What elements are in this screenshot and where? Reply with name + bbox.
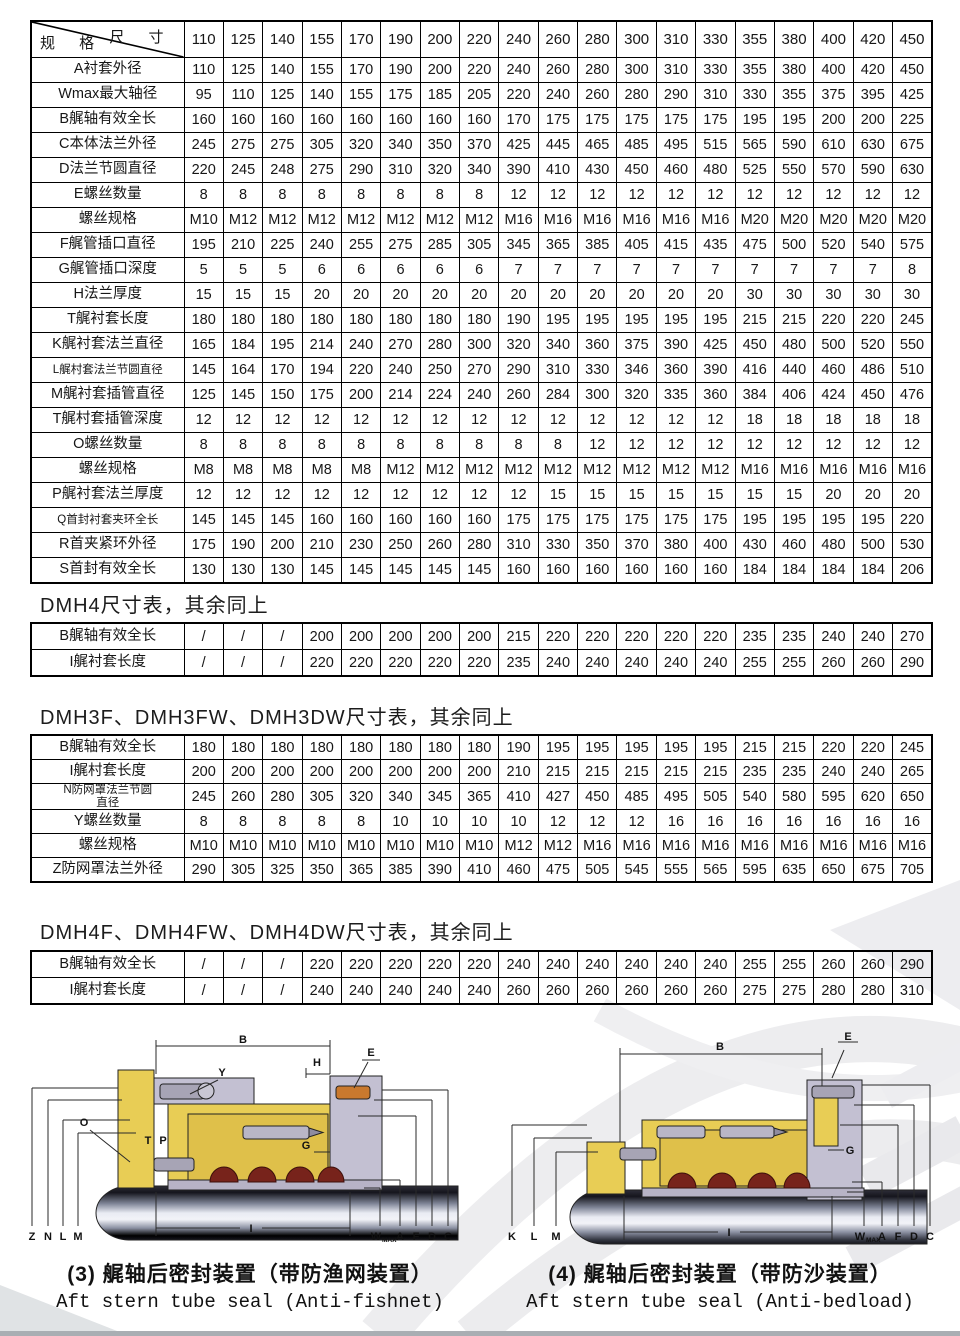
dim-value-cell: 15 <box>538 483 577 508</box>
dim-value-cell: 270 <box>381 333 420 358</box>
dim-value-cell: 450 <box>617 158 656 183</box>
dim-value-cell: 12 <box>774 183 813 208</box>
dim-label-G: G <box>302 1140 311 1152</box>
dim-value-cell: 220 <box>696 623 735 650</box>
dimension-table-dmh3f: B艉轴有效全长180180180180180180180180190195195… <box>30 734 933 883</box>
dimension-table-dmh4f: B艉轴有效全长///220220220220220240240240240240… <box>30 950 933 1005</box>
dim-value-cell: 390 <box>656 333 695 358</box>
dim-value-cell: 12 <box>578 408 617 433</box>
dim-value-cell: 160 <box>617 558 656 584</box>
dim-value-cell: M10 <box>184 208 223 233</box>
dim-label-F: F <box>413 1231 420 1243</box>
dim-value-cell: 290 <box>892 951 932 978</box>
dim-value-cell: 310 <box>892 978 932 1005</box>
dim-value-cell: 240 <box>696 650 735 677</box>
dim-value-cell: 200 <box>302 623 341 650</box>
dim-value-cell: 385 <box>381 858 420 883</box>
dim-value-cell: 200 <box>420 760 459 784</box>
dim-value-cell: M12 <box>223 208 262 233</box>
dim-value-cell: 240 <box>656 650 695 677</box>
dim-value-cell: 180 <box>263 735 302 760</box>
dim-value-cell: 12 <box>538 408 577 433</box>
dim-value-cell: 12 <box>617 183 656 208</box>
dim-value-cell: 390 <box>420 858 459 883</box>
dim-value-cell: 220 <box>656 623 695 650</box>
dim-value-cell: 475 <box>735 233 774 258</box>
dim-value-cell: 500 <box>814 333 853 358</box>
dim-value-cell: / <box>184 623 223 650</box>
dim-value-cell: / <box>263 978 302 1005</box>
dim-value-cell: 18 <box>735 408 774 433</box>
dim-value-cell: 500 <box>774 233 813 258</box>
dim-value-cell: M16 <box>735 458 774 483</box>
table-row: T艉村套插管深度12121212121212121212121212121818… <box>31 408 932 433</box>
dim-value-cell: 220 <box>814 735 853 760</box>
section-heading-dmh4: DMH4尺寸表，其余同上 <box>40 589 269 618</box>
table-row: S首封有效全长130130130145145145145145160160160… <box>31 558 932 584</box>
table-row: N防网罩法兰节圆 直径24526028030532034034536541042… <box>31 784 932 810</box>
dim-value-cell: 160 <box>381 108 420 133</box>
dim-value-cell: 16 <box>735 810 774 834</box>
dim-value-cell: 415 <box>656 233 695 258</box>
dim-value-cell: 195 <box>184 233 223 258</box>
dim-value-cell: 465 <box>578 133 617 158</box>
row-label: D法兰节圆直径 <box>31 158 184 183</box>
dim-value-cell: 16 <box>774 810 813 834</box>
dim-value-cell: 12 <box>617 810 656 834</box>
dim-value-cell: 160 <box>499 558 538 584</box>
table-row: H法兰厚度15151520202020202020202020203030303… <box>31 283 932 308</box>
dim-value-cell: 184 <box>223 333 262 358</box>
dim-value-cell: 340 <box>381 133 420 158</box>
dim-value-cell: 475 <box>538 858 577 883</box>
dim-value-cell: 195 <box>656 308 695 333</box>
dim-value-cell: 245 <box>184 784 223 810</box>
dim-value-cell: 200 <box>420 58 459 83</box>
dim-value-cell: 20 <box>420 283 459 308</box>
dim-value-cell: 30 <box>735 283 774 308</box>
size-column-header: 125 <box>223 21 262 58</box>
dim-value-cell: 8 <box>892 258 932 283</box>
dim-value-cell: 175 <box>499 508 538 533</box>
dim-value-cell: 180 <box>184 735 223 760</box>
row-label: Z防网罩法兰外径 <box>31 858 184 883</box>
dim-value-cell: 12 <box>341 408 380 433</box>
dim-value-cell: 275 <box>381 233 420 258</box>
row-label: R首夹紧环外径 <box>31 533 184 558</box>
dim-label-Y: Y <box>218 1067 226 1079</box>
corner-label-size: 尺 寸 <box>109 26 173 47</box>
dim-value-cell: M10 <box>341 834 380 858</box>
dim-value-cell: 8 <box>223 433 262 458</box>
dim-value-cell: 206 <box>892 558 932 584</box>
dim-value-cell: 240 <box>538 650 577 677</box>
dim-value-cell: 550 <box>892 333 932 358</box>
dim-value-cell: 240 <box>696 951 735 978</box>
dim-value-cell: 16 <box>656 810 695 834</box>
dim-value-cell: 7 <box>538 258 577 283</box>
dim-value-cell: 12 <box>774 433 813 458</box>
dim-value-cell: 200 <box>341 760 380 784</box>
dim-value-cell: 305 <box>460 233 499 258</box>
dim-value-cell: 220 <box>892 508 932 533</box>
dim-value-cell: 12 <box>420 483 459 508</box>
dim-value-cell: 416 <box>735 358 774 383</box>
dim-value-cell: 175 <box>578 108 617 133</box>
dim-value-cell: M12 <box>263 208 302 233</box>
dim-value-cell: 215 <box>735 735 774 760</box>
dim-value-cell: 480 <box>814 533 853 558</box>
dim-value-cell: 175 <box>617 108 656 133</box>
dim-value-cell: 240 <box>617 951 656 978</box>
table-row: I艉村套长度2002002002002002002002002102152152… <box>31 760 932 784</box>
dim-value-cell: 530 <box>892 533 932 558</box>
dim-value-cell: M16 <box>814 458 853 483</box>
dim-value-cell: 260 <box>814 650 853 677</box>
size-column-header: 220 <box>460 21 499 58</box>
dim-value-cell: 424 <box>814 383 853 408</box>
table-row: D法兰节圆直径220245248275290310320340390410430… <box>31 158 932 183</box>
dim-value-cell: 12 <box>499 483 538 508</box>
dim-value-cell: 140 <box>302 83 341 108</box>
dim-value-cell: 260 <box>853 951 892 978</box>
dim-value-cell: M10 <box>460 834 499 858</box>
dim-value-cell: M10 <box>420 834 459 858</box>
dim-value-cell: 200 <box>341 623 380 650</box>
dim-value-cell: 385 <box>578 233 617 258</box>
dim-label-O: O <box>80 1117 89 1129</box>
top-bolt <box>160 1084 204 1099</box>
dim-value-cell: 485 <box>617 784 656 810</box>
row-label: M艉衬套插管直径 <box>31 383 184 408</box>
dim-value-cell: / <box>223 978 262 1005</box>
dim-value-cell: 12 <box>892 183 932 208</box>
dim-value-cell: 5 <box>223 258 262 283</box>
dim-value-cell: 185 <box>420 83 459 108</box>
dim-value-cell: 12 <box>696 183 735 208</box>
dim-value-cell: 20 <box>617 283 656 308</box>
dim-value-cell: 240 <box>578 951 617 978</box>
dim-value-cell: 240 <box>538 83 577 108</box>
dim-value-cell: 310 <box>656 58 695 83</box>
dim-value-cell: 330 <box>696 58 735 83</box>
dim-value-cell: 195 <box>735 108 774 133</box>
dim-value-cell: 260 <box>617 978 656 1005</box>
dim-value-cell: 200 <box>460 760 499 784</box>
dim-value-cell: 290 <box>184 858 223 883</box>
dim-value-cell: 440 <box>774 358 813 383</box>
dim-value-cell: 220 <box>381 951 420 978</box>
dim-label-B: B <box>716 1041 724 1053</box>
dim-value-cell: 275 <box>223 133 262 158</box>
dim-value-cell: 235 <box>735 623 774 650</box>
dim-value-cell: 110 <box>184 58 223 83</box>
dim-value-cell: 365 <box>538 233 577 258</box>
dim-value-cell: M16 <box>696 834 735 858</box>
dim-value-cell: 635 <box>774 858 813 883</box>
dim-value-cell: 12 <box>223 483 262 508</box>
size-column-header: 260 <box>538 21 577 58</box>
dim-value-cell: 245 <box>892 735 932 760</box>
dim-value-cell: 330 <box>735 83 774 108</box>
dim-label-C: C <box>444 1231 452 1243</box>
dim-value-cell: 220 <box>420 650 459 677</box>
dim-value-cell: 425 <box>696 333 735 358</box>
dim-value-cell: 30 <box>814 283 853 308</box>
page-bottom-band <box>0 1331 960 1336</box>
dim-value-cell: 130 <box>223 558 262 584</box>
dim-value-cell: 180 <box>302 308 341 333</box>
dim-value-cell: 400 <box>814 58 853 83</box>
dim-value-cell: 195 <box>578 735 617 760</box>
dim-value-cell: 565 <box>696 858 735 883</box>
dim-value-cell: 180 <box>223 308 262 333</box>
table-row: A衬套外径11012514015517019020022024026028030… <box>31 58 932 83</box>
dim-value-cell: 200 <box>341 383 380 408</box>
dim-value-cell: 12 <box>263 408 302 433</box>
dim-value-cell: 300 <box>617 58 656 83</box>
dim-value-cell: M8 <box>263 458 302 483</box>
dim-value-cell: 160 <box>696 558 735 584</box>
dim-value-cell: 260 <box>578 83 617 108</box>
size-column-header: 110 <box>184 21 223 58</box>
dim-value-cell: M12 <box>499 458 538 483</box>
dim-value-cell: 450 <box>735 333 774 358</box>
dim-label-E: E <box>367 1047 374 1059</box>
dim-value-cell: 520 <box>853 333 892 358</box>
dim-value-cell: 12 <box>538 183 577 208</box>
dim-value-cell: M16 <box>774 458 813 483</box>
dim-label-N: N <box>44 1231 52 1243</box>
dim-value-cell: 130 <box>184 558 223 584</box>
caption-right-en: Aft stern tube seal (Anti-bedload) <box>495 1291 945 1313</box>
dim-value-cell: 12 <box>420 408 459 433</box>
table-row: G艉管插口深度5556666677777777778 <box>31 258 932 283</box>
dim-value-cell: 180 <box>341 735 380 760</box>
dim-value-cell: 195 <box>696 308 735 333</box>
dim-value-cell: 275 <box>735 978 774 1005</box>
dim-label-Wmax: W <box>371 1231 382 1243</box>
dim-value-cell: 240 <box>460 978 499 1005</box>
row-label: B艉轴有效全长 <box>31 951 184 978</box>
dim-value-cell: 240 <box>460 383 499 408</box>
dim-value-cell: 195 <box>656 735 695 760</box>
dim-value-cell: 260 <box>853 650 892 677</box>
dim-value-cell: 145 <box>184 358 223 383</box>
dim-value-cell: 280 <box>263 784 302 810</box>
dim-value-cell: 200 <box>853 108 892 133</box>
dim-value-cell: 15 <box>696 483 735 508</box>
table-row: 螺丝规格M10M10M10M10M10M10M10M10M12M12M16M16… <box>31 834 932 858</box>
dim-value-cell: / <box>263 951 302 978</box>
dim-value-cell: 310 <box>696 83 735 108</box>
dim-value-cell: 260 <box>538 58 577 83</box>
top-bolt-2 <box>720 1126 774 1138</box>
dim-value-cell: 160 <box>656 558 695 584</box>
caption-left: (3) 艉轴后密封装置（带防渔网装置） Aft stern tube seal … <box>30 1258 470 1313</box>
dim-value-cell: / <box>184 650 223 677</box>
dim-value-cell: 18 <box>774 408 813 433</box>
dim-value-cell: 200 <box>420 623 459 650</box>
dim-value-cell: 15 <box>656 483 695 508</box>
dim-value-cell: 125 <box>223 58 262 83</box>
dim-value-cell: 220 <box>617 623 656 650</box>
row-label: F艉管插口直径 <box>31 233 184 258</box>
diagram-aft-seal-antifishnet: B Y H E O T P G Z N L M I W MAX A F D C <box>18 1030 483 1254</box>
size-column-header: 310 <box>656 21 695 58</box>
dim-value-cell: 230 <box>341 533 380 558</box>
dim-value-cell: M12 <box>617 458 656 483</box>
dim-value-cell: M8 <box>223 458 262 483</box>
row-label: E螺丝数量 <box>31 183 184 208</box>
dim-value-cell: 284 <box>538 383 577 408</box>
row-label: B艉轴有效全长 <box>31 108 184 133</box>
dim-value-cell: 30 <box>853 283 892 308</box>
dim-value-cell: 260 <box>499 978 538 1005</box>
dim-value-cell: 420 <box>853 58 892 83</box>
dim-value-cell: 460 <box>774 533 813 558</box>
dim-value-cell: 370 <box>617 533 656 558</box>
dim-value-cell: 12 <box>381 483 420 508</box>
dim-value-cell: 220 <box>302 650 341 677</box>
dim-value-cell: 20 <box>696 283 735 308</box>
dim-value-cell: 195 <box>617 308 656 333</box>
dim-value-cell: 180 <box>184 308 223 333</box>
dim-value-cell: 175 <box>696 508 735 533</box>
dim-value-cell: 15 <box>184 283 223 308</box>
dim-value-cell: 12 <box>814 183 853 208</box>
dim-value-cell: 145 <box>381 558 420 584</box>
header-corner-cell: 尺 寸规 格 <box>31 21 184 58</box>
dim-value-cell: 505 <box>578 858 617 883</box>
dim-value-cell: 225 <box>263 233 302 258</box>
dim-value-cell: 345 <box>499 233 538 258</box>
dim-value-cell: 15 <box>223 283 262 308</box>
dim-value-cell: 160 <box>460 508 499 533</box>
dim-value-cell: 214 <box>381 383 420 408</box>
dim-value-cell: 6 <box>302 258 341 283</box>
dim-value-cell: M12 <box>538 834 577 858</box>
dim-value-cell: 525 <box>735 158 774 183</box>
dim-value-cell: 190 <box>381 58 420 83</box>
dim-value-cell: M8 <box>341 458 380 483</box>
dim-value-cell: 145 <box>223 383 262 408</box>
dim-value-cell: 16 <box>892 810 932 834</box>
dim-value-cell: M12 <box>656 458 695 483</box>
dim-value-cell: 195 <box>538 308 577 333</box>
dim-value-cell: 160 <box>460 108 499 133</box>
dim-value-cell: 145 <box>223 508 262 533</box>
dim-value-cell: 705 <box>892 858 932 883</box>
dim-value-cell: / <box>184 978 223 1005</box>
dim-value-cell: 150 <box>263 383 302 408</box>
dim-value-cell: 175 <box>184 533 223 558</box>
row-label: B艉轴有效全长 <box>31 623 184 650</box>
dim-value-cell: 410 <box>538 158 577 183</box>
dim-value-cell: 220 <box>184 158 223 183</box>
dim-value-cell: 175 <box>302 383 341 408</box>
dim-value-cell: 345 <box>420 784 459 810</box>
dim-value-cell: 7 <box>853 258 892 283</box>
dim-value-cell: 175 <box>617 508 656 533</box>
dim-value-cell: 350 <box>302 858 341 883</box>
dim-value-cell: 620 <box>853 784 892 810</box>
dim-value-cell: 12 <box>302 483 341 508</box>
dim-value-cell: 175 <box>656 508 695 533</box>
dim-value-cell: 610 <box>814 133 853 158</box>
dim-value-cell: 160 <box>223 108 262 133</box>
row-label: B艉轴有效全长 <box>31 735 184 760</box>
dim-value-cell: 395 <box>853 83 892 108</box>
dim-value-cell: M12 <box>381 458 420 483</box>
dim-value-cell: 260 <box>538 978 577 1005</box>
dim-value-cell: 265 <box>892 760 932 784</box>
dim-value-cell: 220 <box>853 308 892 333</box>
dimension-table-main: 尺 寸规 格1101251401551701902002202402602803… <box>30 20 933 584</box>
size-column-header: 420 <box>853 21 892 58</box>
dim-value-cell: 170 <box>341 58 380 83</box>
dim-value-cell: 10 <box>420 810 459 834</box>
dim-value-cell: 435 <box>696 233 735 258</box>
dim-value-cell: 275 <box>263 133 302 158</box>
dim-value-cell: 240 <box>538 951 577 978</box>
dim-value-cell: 7 <box>696 258 735 283</box>
main-dimension-table-container: 尺 寸规 格1101251401551701902002202402602803… <box>30 20 933 584</box>
section-heading-dmh3f: DMH3F、DMH3FW、DMH3DW尺寸表，其余同上 <box>40 701 514 730</box>
dim-value-cell: M16 <box>617 208 656 233</box>
dim-value-cell: 220 <box>341 951 380 978</box>
dim-value-cell: 406 <box>774 383 813 408</box>
dim-value-cell: 175 <box>538 508 577 533</box>
dim-value-cell: 427 <box>538 784 577 810</box>
dim-value-cell: 145 <box>263 508 302 533</box>
dim-value-cell: 355 <box>735 58 774 83</box>
dim-value-cell: / <box>223 623 262 650</box>
seal-housing <box>587 1080 864 1200</box>
dim-value-cell: 365 <box>341 858 380 883</box>
row-label: O螺丝数量 <box>31 433 184 458</box>
table-row: 螺丝规格M8M8M8M8M8M12M12M12M12M12M12M12M12M1… <box>31 458 932 483</box>
size-column-header: 190 <box>381 21 420 58</box>
dim-value-cell: 160 <box>420 108 459 133</box>
dim-value-cell: 235 <box>735 760 774 784</box>
dim-value-cell: 8 <box>302 433 341 458</box>
dim-value-cell: M12 <box>420 458 459 483</box>
dim-value-cell: 145 <box>420 558 459 584</box>
dim-value-cell: 18 <box>814 408 853 433</box>
table-row: P艉衬套法兰厚度12121212121212121215151515151515… <box>31 483 932 508</box>
dim-value-cell: 280 <box>420 333 459 358</box>
dim-value-cell: 12 <box>814 433 853 458</box>
dim-value-cell: 480 <box>696 158 735 183</box>
dim-value-cell: 360 <box>656 358 695 383</box>
dim-value-cell: 505 <box>696 784 735 810</box>
dim-value-cell: 365 <box>460 784 499 810</box>
dim-value-cell: 215 <box>774 308 813 333</box>
dim-label-A: A <box>878 1231 886 1243</box>
dim-value-cell: 165 <box>184 333 223 358</box>
dim-value-cell: 8 <box>538 433 577 458</box>
dim-value-cell: 350 <box>420 133 459 158</box>
catalog-page: 尺 寸规 格1101251401551701902002202402602803… <box>0 0 960 1336</box>
table-row: B艉轴有效全长180180180180180180180180190195195… <box>31 735 932 760</box>
dim-value-cell: 12 <box>617 408 656 433</box>
seal-housing <box>118 1070 382 1190</box>
dim-value-cell: 170 <box>499 108 538 133</box>
dim-label-A: A <box>396 1231 404 1243</box>
dim-value-cell: 200 <box>381 623 420 650</box>
row-label: I艉村套长度 <box>31 978 184 1005</box>
